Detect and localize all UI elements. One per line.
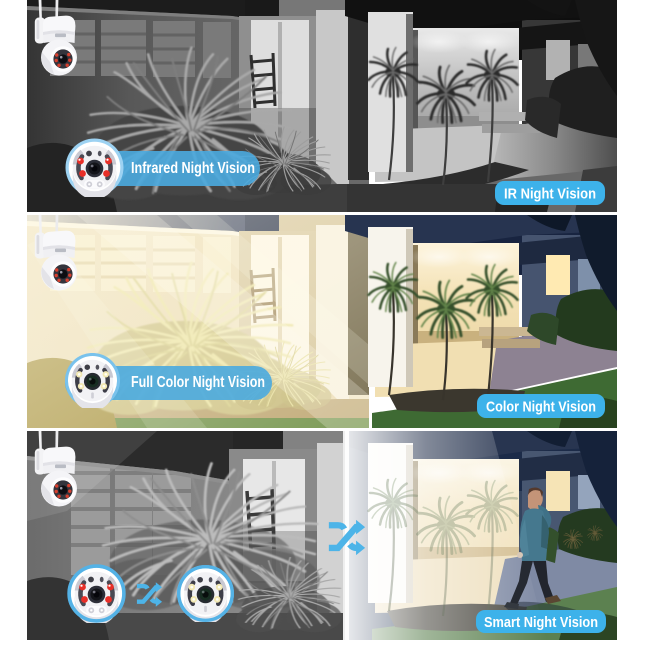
svg-text:Infrared Night Vision: Infrared Night Vision: [131, 160, 255, 177]
svg-text:Full Color Night Vision: Full Color Night Vision: [131, 374, 265, 391]
svg-text:IR Night Vision: IR Night Vision: [504, 186, 596, 203]
svg-text:Smart Night Vision: Smart Night Vision: [484, 614, 598, 631]
svg-text:Color Night Vision: Color Night Vision: [486, 399, 596, 416]
